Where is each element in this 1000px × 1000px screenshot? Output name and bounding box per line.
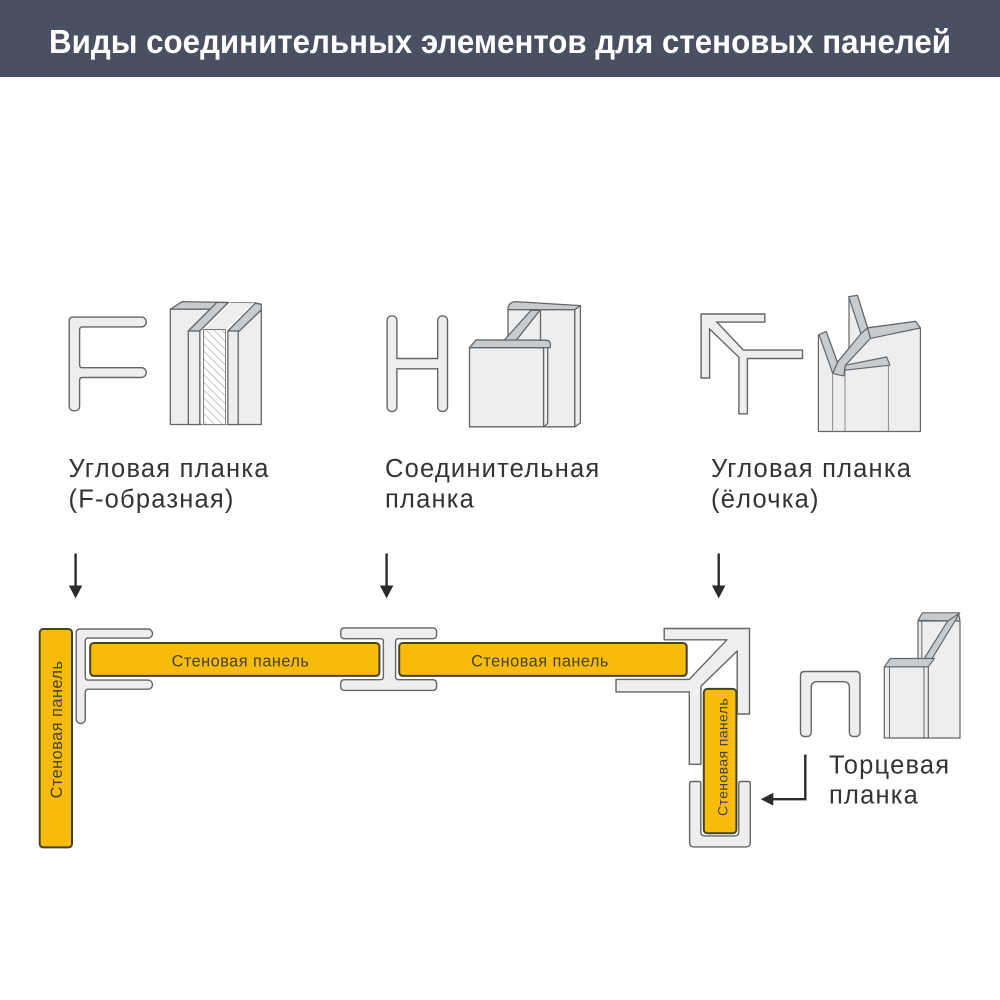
svg-text:планка: планка [385, 486, 475, 514]
svg-text:Торцевая: Торцевая [829, 752, 950, 780]
svg-text:Стеновая панель: Стеновая панель [48, 661, 66, 799]
svg-text:Стеновая панель: Стеновая панель [471, 652, 609, 670]
svg-text:планка: планка [829, 782, 919, 810]
svg-text:(F-образная): (F-образная) [69, 486, 235, 514]
svg-text:Соединительная: Соединительная [385, 455, 600, 483]
svg-text:Угловая планка: Угловая планка [69, 455, 270, 483]
svg-text:Виды соединительных элементов: Виды соединительных элементов для стенов… [49, 23, 951, 60]
svg-text:Стеновая панель: Стеновая панель [715, 698, 731, 816]
svg-text:Стеновая панель: Стеновая панель [172, 652, 310, 670]
svg-text:(ёлочка): (ёлочка) [711, 486, 820, 514]
svg-text:Угловая планка: Угловая планка [711, 455, 912, 483]
